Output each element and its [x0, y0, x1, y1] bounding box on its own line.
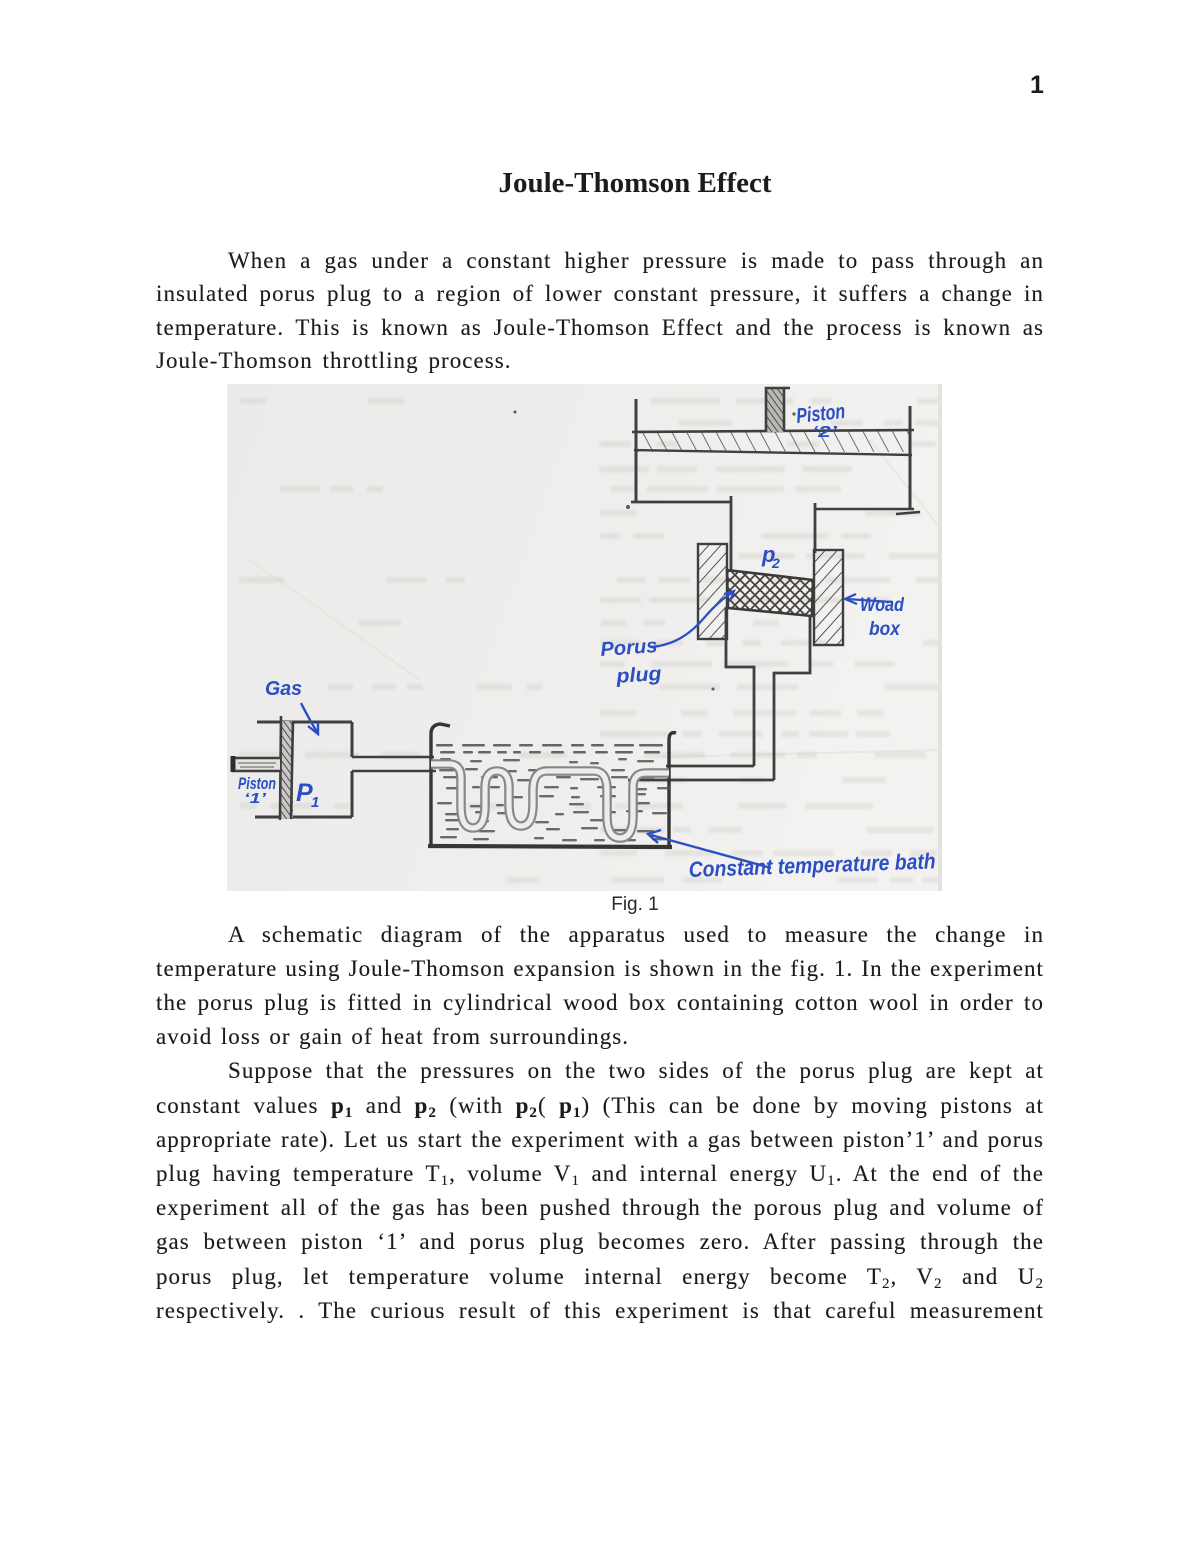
svg-text:2: 2 [771, 555, 780, 571]
svg-text:‘2’: ‘2’ [812, 424, 838, 441]
svg-text:‘1’: ‘1’ [244, 790, 267, 807]
svg-text:plug: plug [615, 663, 662, 688]
svg-text:box: box [869, 619, 901, 640]
svg-text:Porus: Porus [600, 635, 658, 661]
svg-text:1: 1 [311, 794, 319, 811]
svg-text:Gas: Gas [265, 678, 302, 700]
svg-text:Woad: Woad [860, 595, 904, 616]
